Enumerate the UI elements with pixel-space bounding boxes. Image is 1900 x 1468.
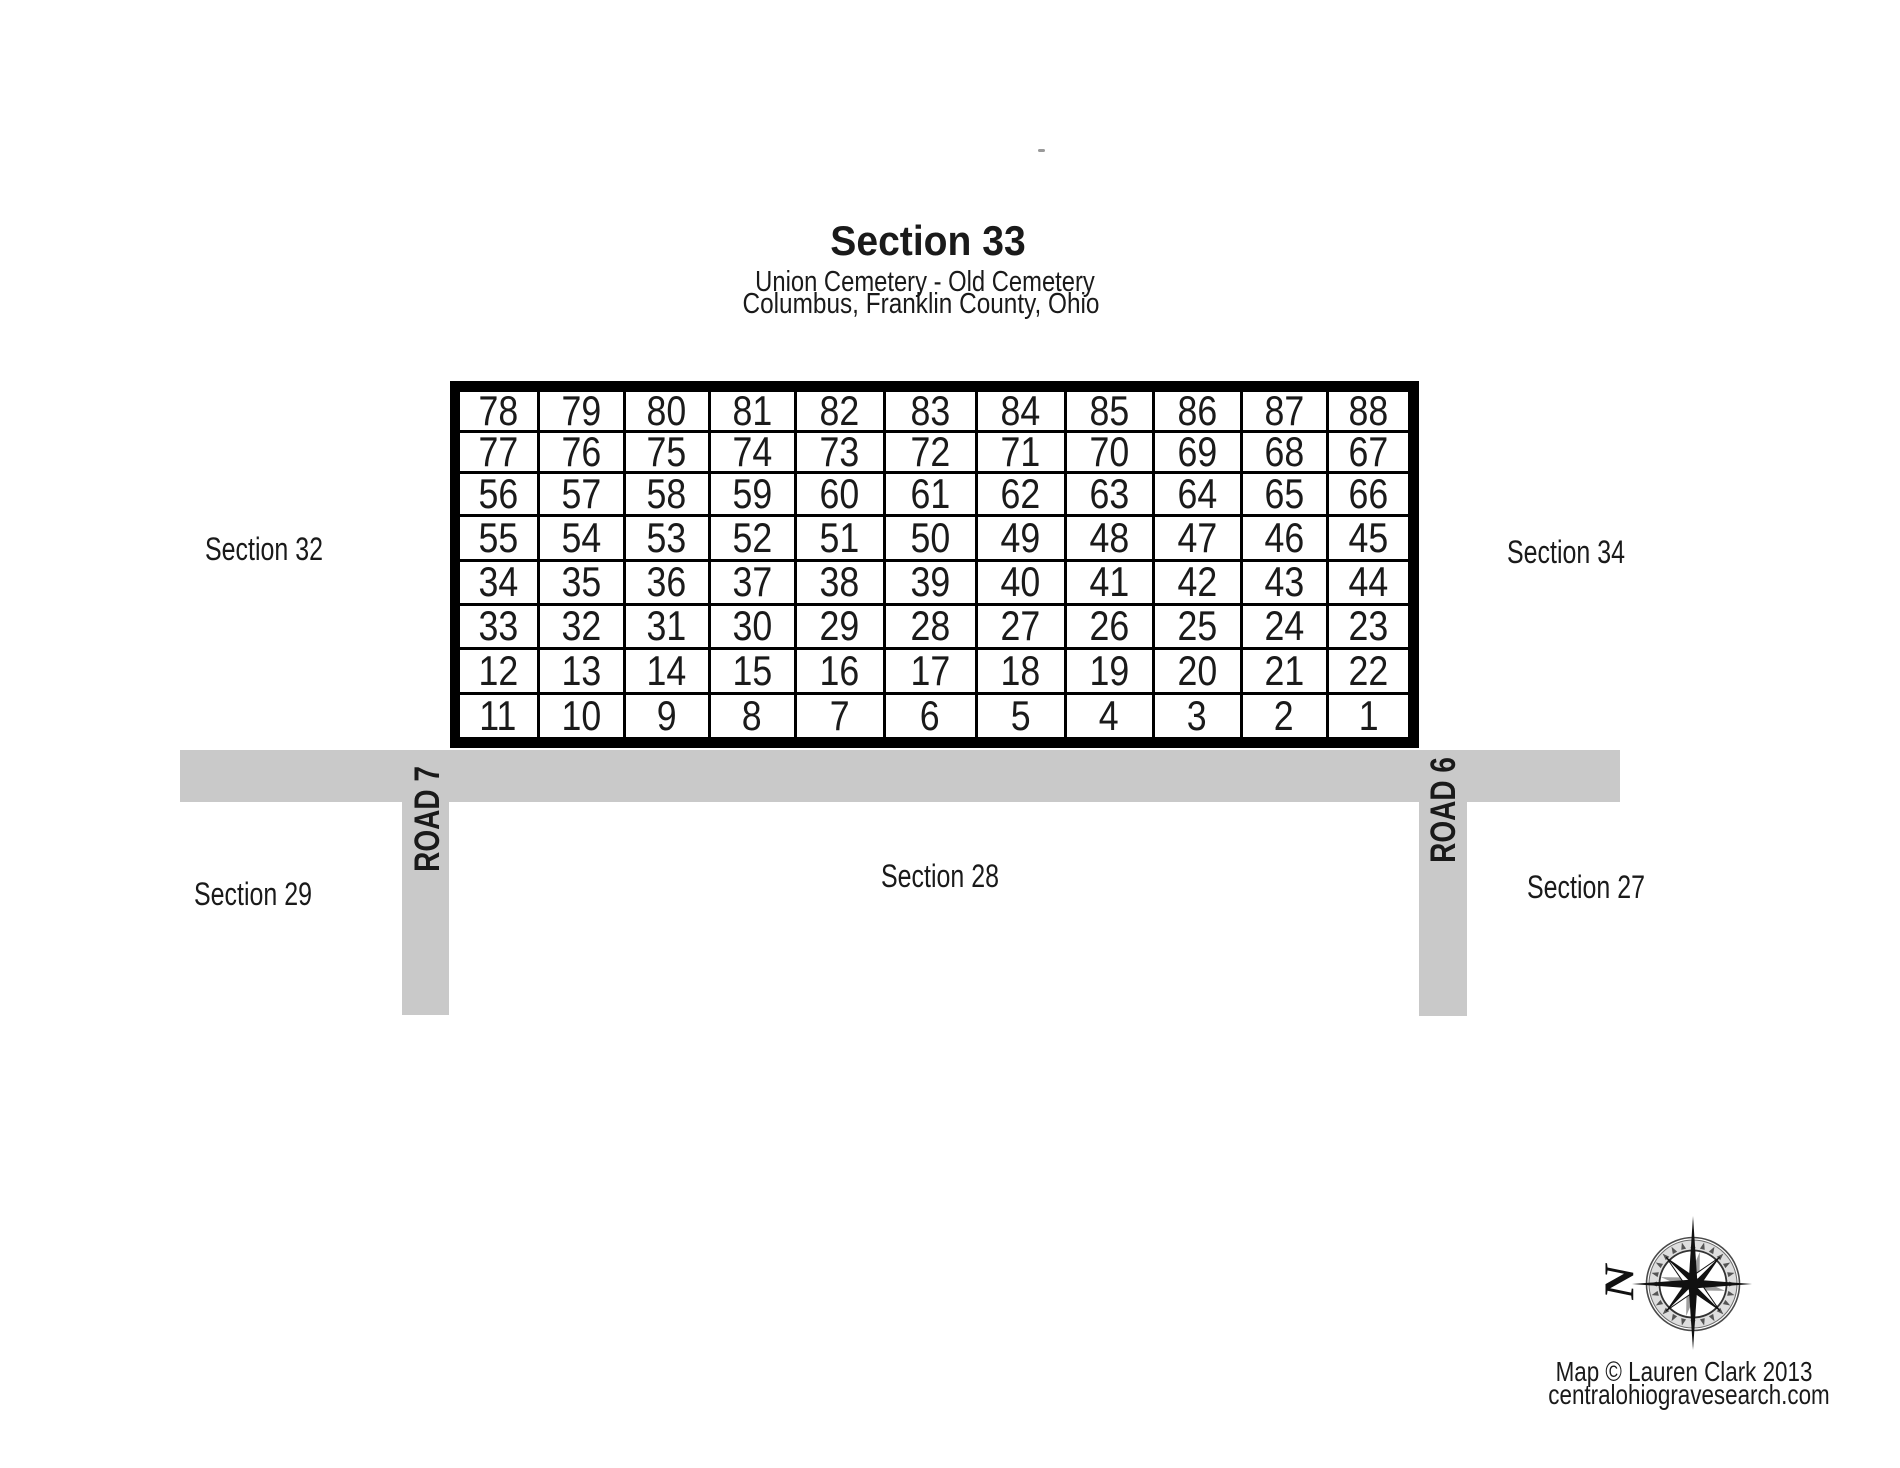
svg-text:N: N [1596,1262,1643,1301]
